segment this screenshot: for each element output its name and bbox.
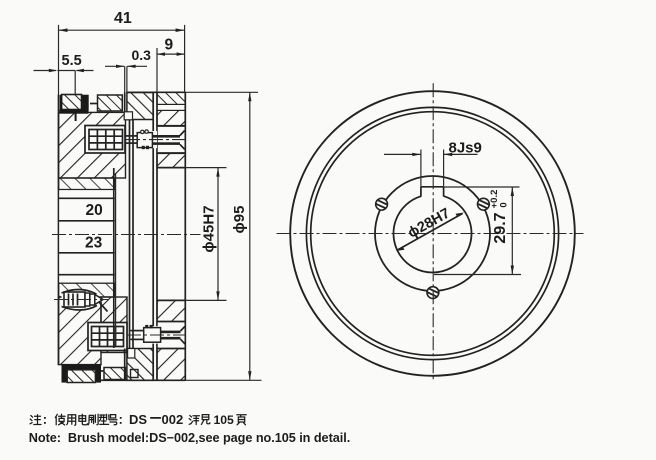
svg-text:23: 23 <box>85 235 103 252</box>
svg-text:20: 20 <box>86 202 103 219</box>
svg-text:105: 105 <box>214 413 235 427</box>
svg-text:Note: Brush model:DS−002,see: Note: Brush model:DS−002,see page no.105… <box>29 431 350 445</box>
svg-text:ϕ45H7: ϕ45H7 <box>201 205 218 252</box>
svg-text:ϕ95: ϕ95 <box>231 206 248 234</box>
svg-text:9: 9 <box>165 36 174 53</box>
svg-text:29.7: 29.7 <box>492 212 509 243</box>
svg-text:41: 41 <box>114 10 132 27</box>
svg-text:5.5: 5.5 <box>62 53 82 69</box>
svg-text:DS: DS <box>129 412 147 427</box>
svg-text:0: 0 <box>499 202 510 207</box>
svg-text:8Js9: 8Js9 <box>449 140 482 157</box>
svg-text:002: 002 <box>162 412 184 427</box>
svg-text:0.3: 0.3 <box>132 47 152 63</box>
